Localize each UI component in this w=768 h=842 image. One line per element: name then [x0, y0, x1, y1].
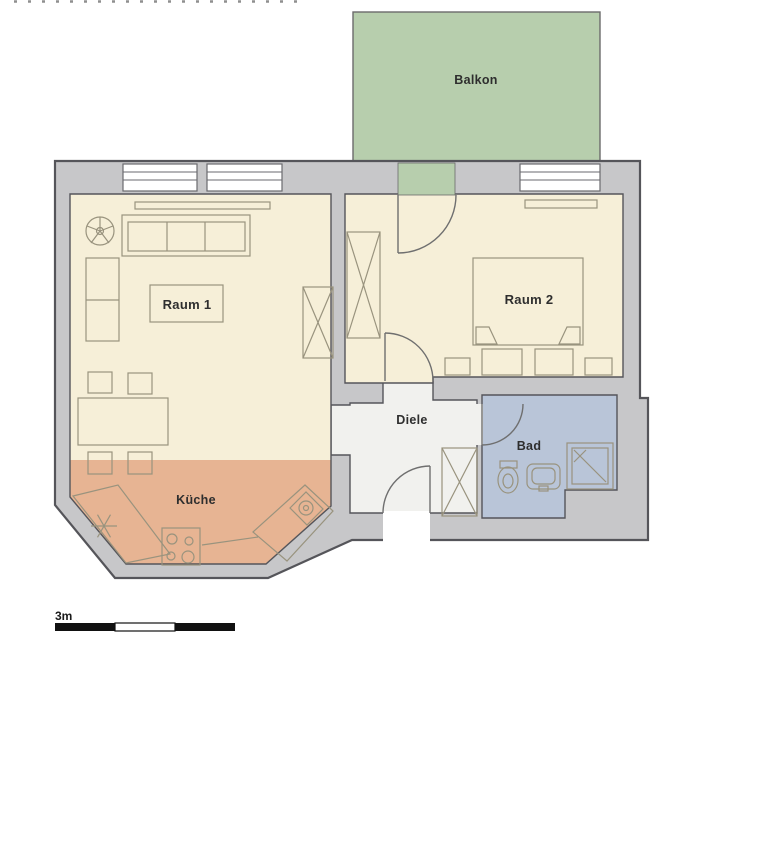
- scale-label: 3m: [55, 609, 72, 623]
- scale-segment-dark: [55, 623, 115, 631]
- bad-label: Bad: [517, 439, 542, 453]
- floor-plan: Balkon Raum 1 Raum 2 Küche Diele Bad 3m: [0, 0, 768, 842]
- window-icon: [520, 164, 600, 191]
- balcony-label: Balkon: [454, 73, 497, 87]
- raum1-label: Raum 1: [163, 297, 212, 312]
- scale-segment-light: [115, 623, 175, 631]
- raum2-label: Raum 2: [505, 292, 554, 307]
- window-icon: [207, 164, 282, 191]
- room-raum2: [345, 194, 623, 383]
- entrance-door-opening: [383, 511, 430, 542]
- floor-plan-page: Balkon Raum 1 Raum 2 Küche Diele Bad 3m: [0, 0, 768, 842]
- balcony-floor: [353, 12, 600, 162]
- scale-bar: 3m: [55, 609, 235, 631]
- balcony-door-opening: [398, 163, 455, 195]
- balcony-area: [353, 12, 600, 162]
- scale-segment-dark: [175, 623, 235, 631]
- diele-label: Diele: [396, 413, 427, 427]
- window-icon: [123, 164, 197, 191]
- kueche-label: Küche: [176, 493, 216, 507]
